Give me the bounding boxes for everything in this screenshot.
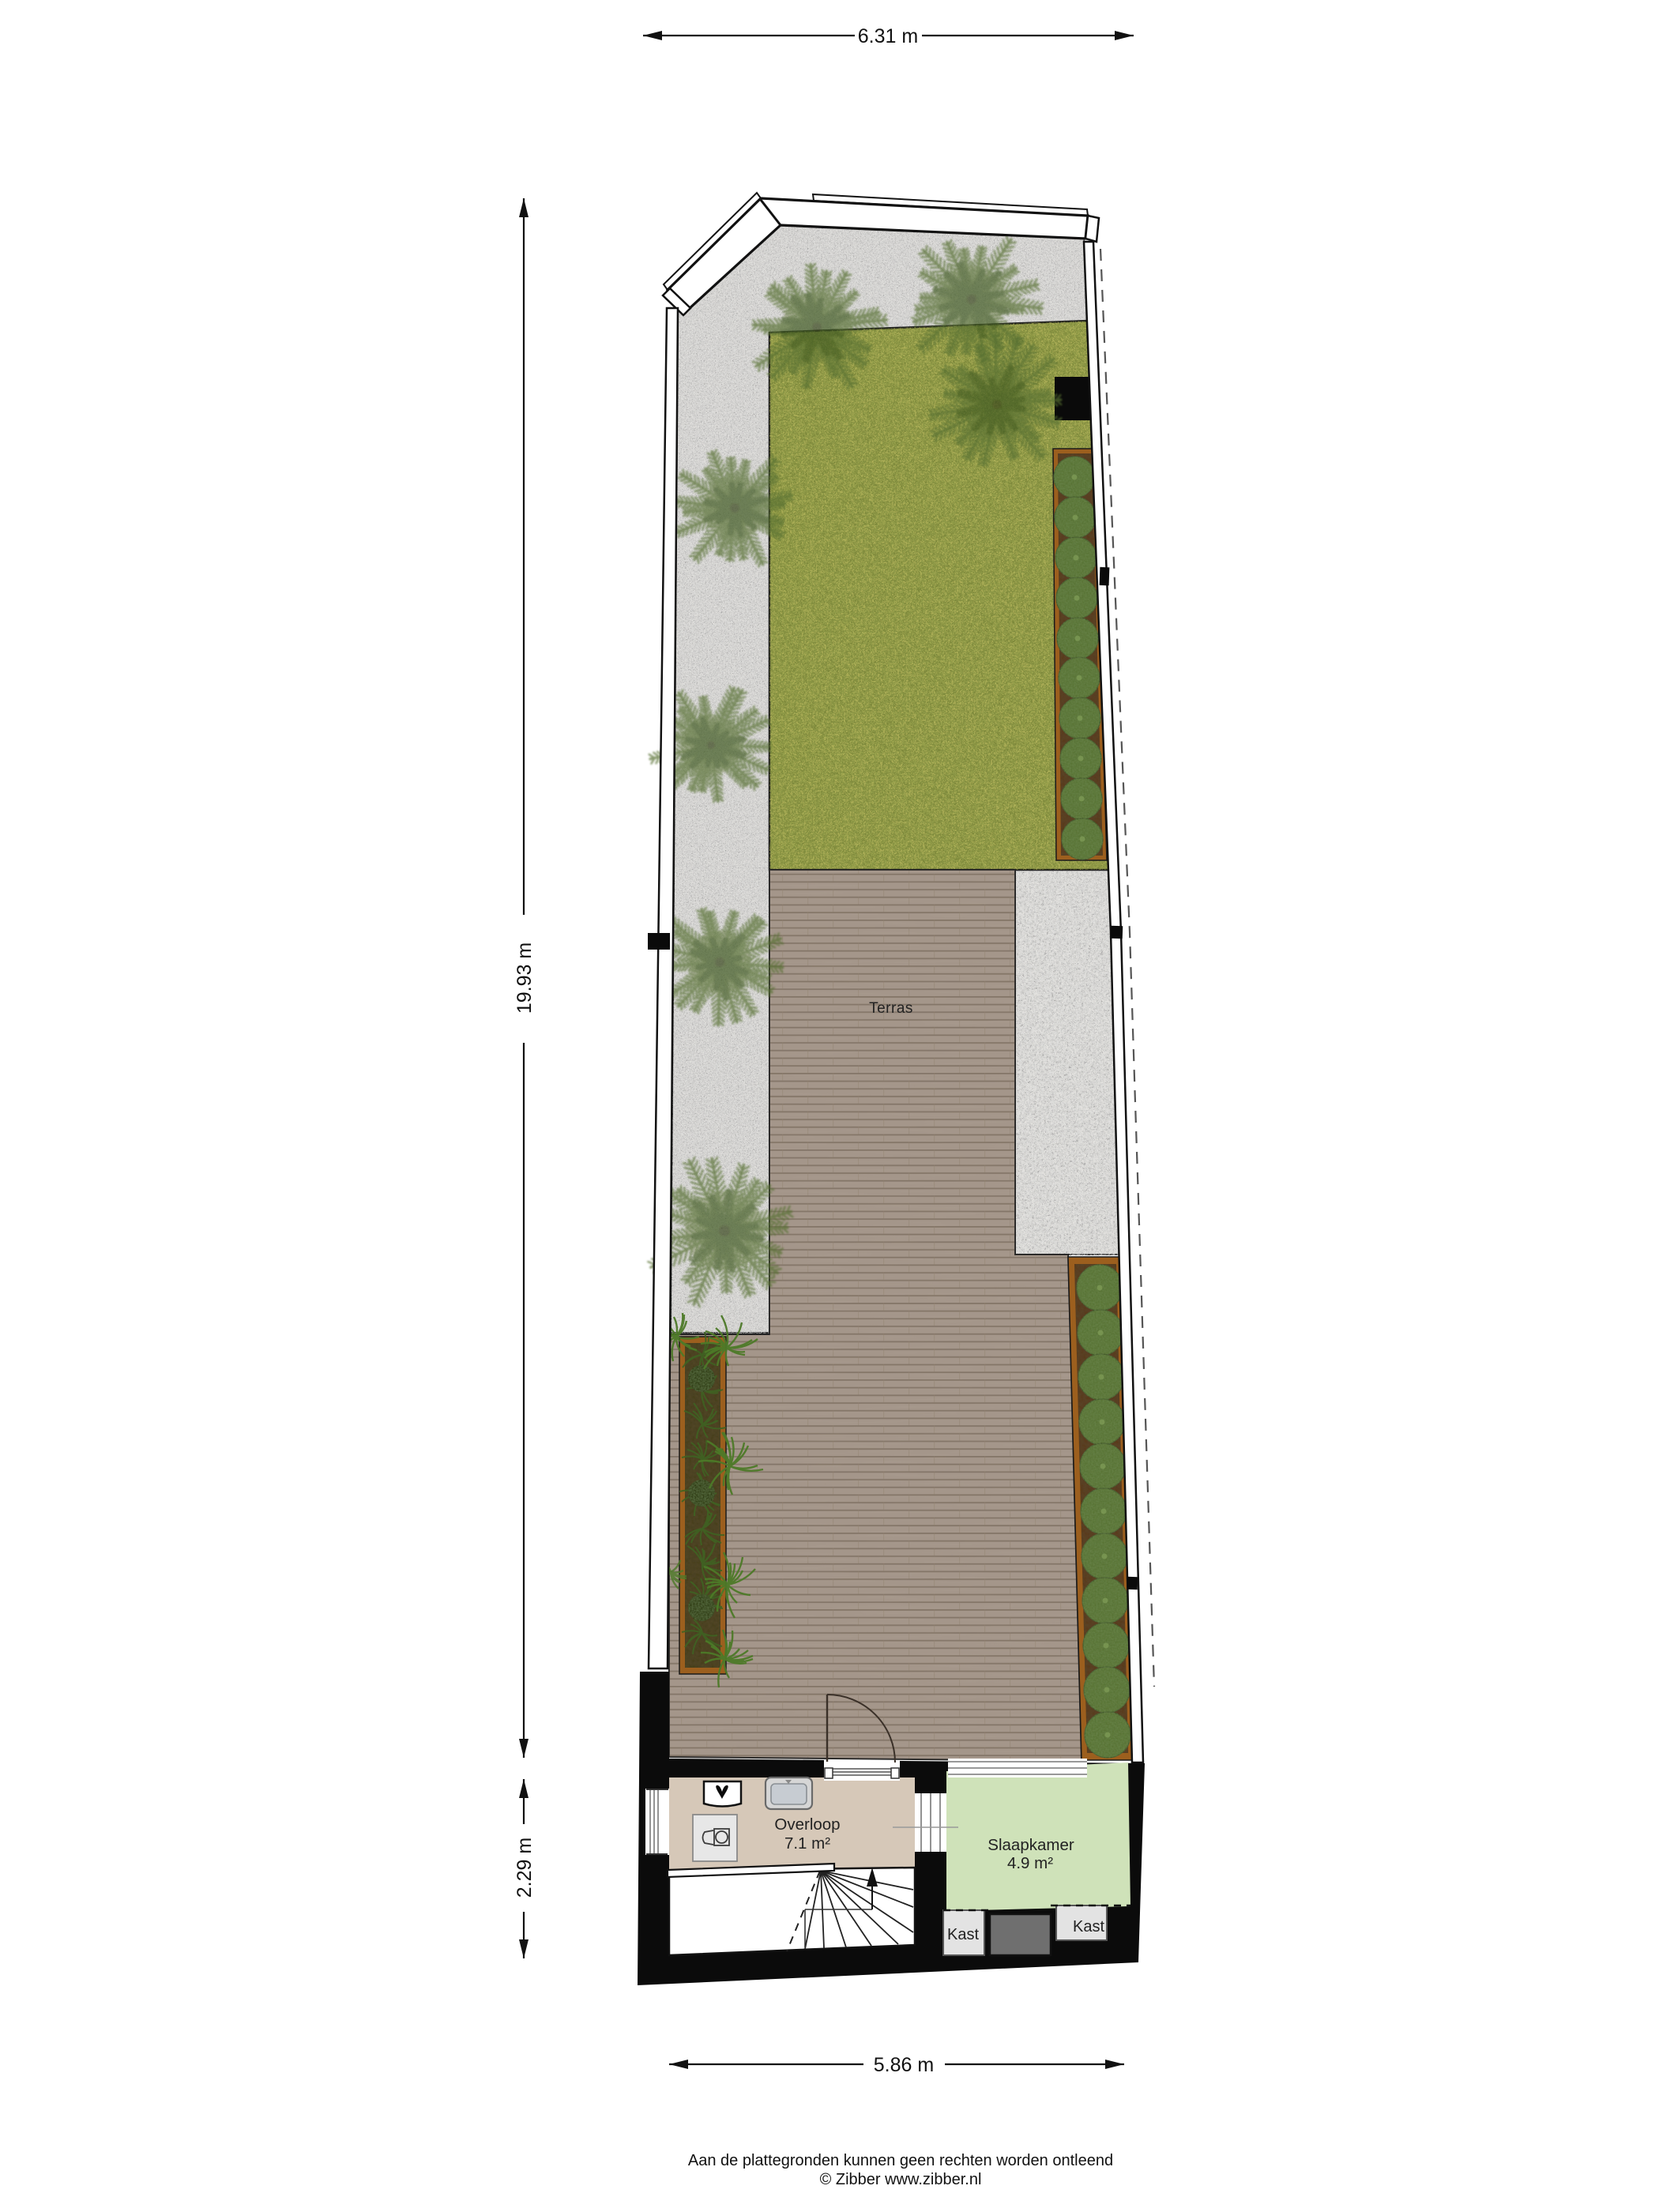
svg-text:19.93 m: 19.93 m [513, 942, 536, 1014]
svg-text:© Zibber www.zibber.nl: © Zibber www.zibber.nl [820, 2171, 982, 2188]
svg-text:7.1 m²: 7.1 m² [784, 1834, 830, 1853]
svg-text:Aan de plattegronden kunnen ge: Aan de plattegronden kunnen geen rechten… [688, 2152, 1113, 2169]
svg-text:6.31 m: 6.31 m [858, 25, 918, 47]
svg-text:Slaapkamer: Slaapkamer [987, 1836, 1074, 1854]
svg-text:Terras: Terras [869, 1000, 913, 1017]
svg-text:Kast: Kast [1073, 1918, 1104, 1935]
svg-text:Kast: Kast [947, 1926, 979, 1943]
svg-text:5.86 m: 5.86 m [874, 2054, 934, 2076]
svg-text:4.9 m²: 4.9 m² [1007, 1854, 1053, 1872]
svg-text:Overloop: Overloop [774, 1815, 840, 1834]
svg-text:2.29 m: 2.29 m [513, 1838, 536, 1898]
